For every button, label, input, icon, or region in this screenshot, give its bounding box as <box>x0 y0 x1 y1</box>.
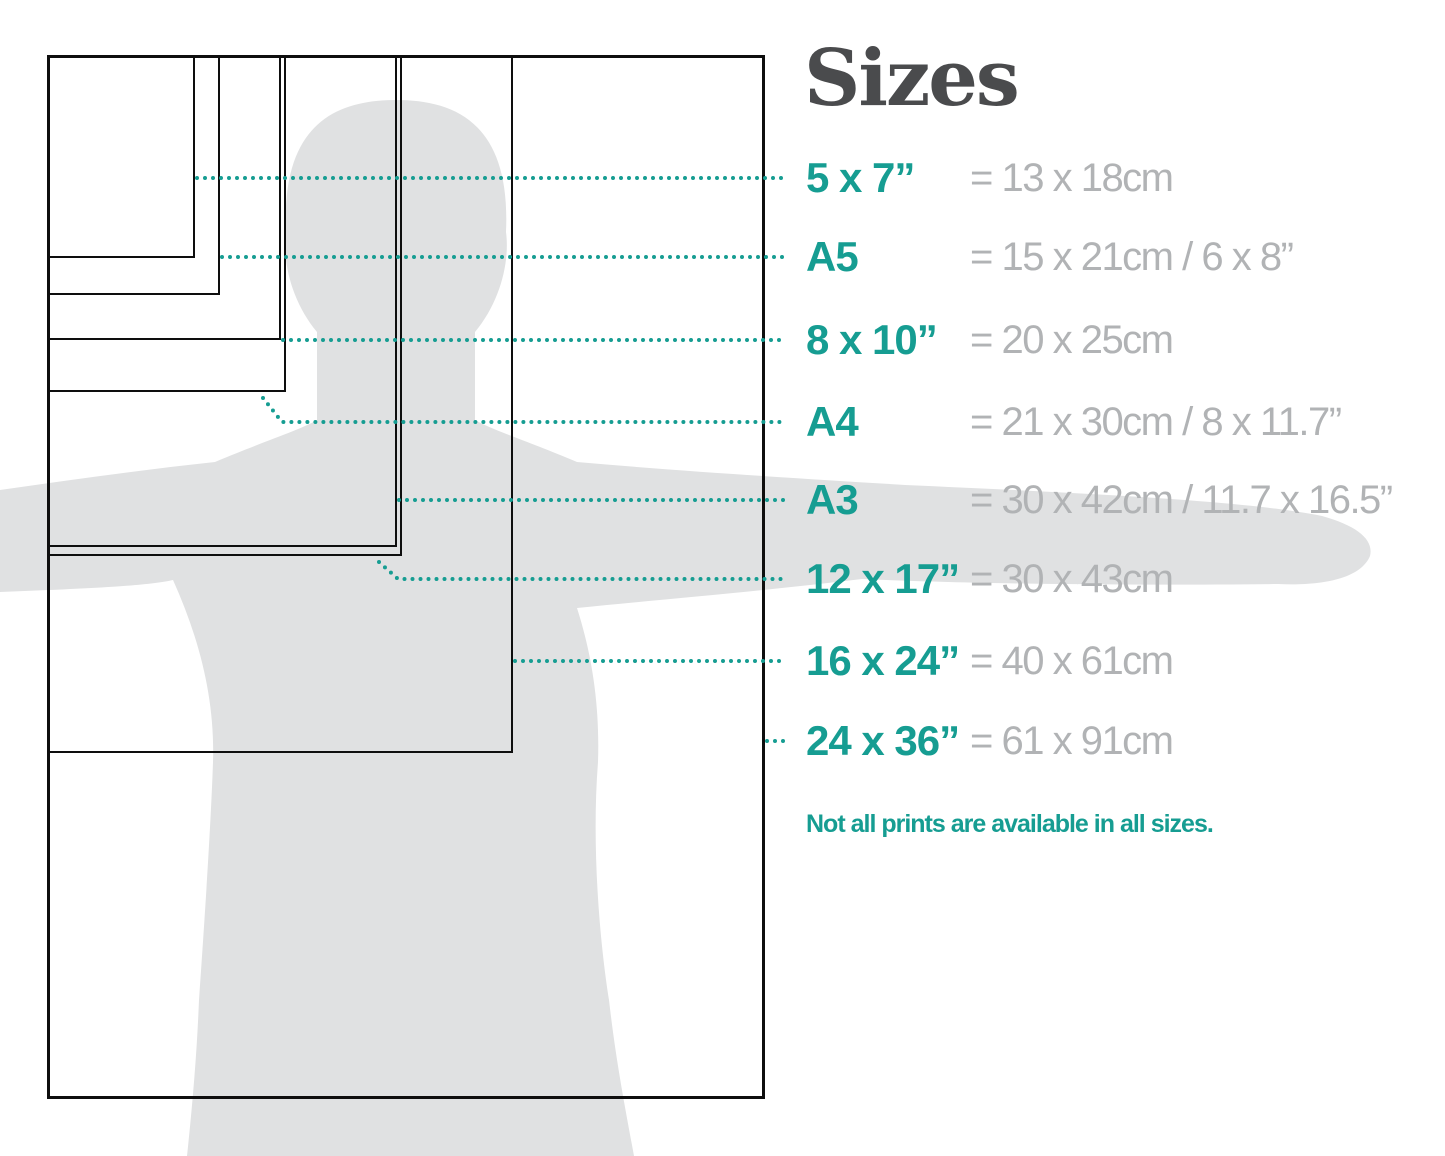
size-guide-canvas: Sizes 5 x 7” = 13 x 18cm A5 = 15 x 21cm … <box>0 0 1445 1156</box>
size-label: 12 x 17” <box>806 549 959 609</box>
size-metric-value: = 20 x 25cm <box>970 310 1173 370</box>
size-label: A3 <box>806 470 858 530</box>
legend-column: Sizes 5 x 7” = 13 x 18cm A5 = 15 x 21cm … <box>0 0 1445 1156</box>
size-row: A4 = 21 x 30cm / 8 x 11.7” <box>806 392 1445 452</box>
size-metric-value: = 15 x 21cm / 6 x 8” <box>970 227 1292 287</box>
size-row: 12 x 17” = 30 x 43cm <box>806 549 1445 609</box>
size-label: 16 x 24” <box>806 631 959 691</box>
size-label: 8 x 10” <box>806 310 937 370</box>
size-row: 5 x 7” = 13 x 18cm <box>806 148 1445 208</box>
size-label: A5 <box>806 227 858 287</box>
size-row: 16 x 24” = 40 x 61cm <box>806 631 1445 691</box>
size-row: 8 x 10” = 20 x 25cm <box>806 310 1445 370</box>
size-label: 5 x 7” <box>806 148 914 208</box>
size-row: A3 = 30 x 42cm / 11.7 x 16.5” <box>806 470 1445 530</box>
size-row: 24 x 36” = 61 x 91cm <box>806 711 1445 771</box>
size-metric-value: = 30 x 42cm / 11.7 x 16.5” <box>970 470 1392 530</box>
page-title: Sizes <box>804 40 1018 118</box>
size-metric-value: = 61 x 91cm <box>970 711 1173 771</box>
size-label: A4 <box>806 392 858 452</box>
size-row: A5 = 15 x 21cm / 6 x 8” <box>806 227 1445 287</box>
size-metric-value: = 13 x 18cm <box>970 148 1173 208</box>
availability-note: Not all prints are available in all size… <box>806 810 1213 839</box>
size-metric-value: = 21 x 30cm / 8 x 11.7” <box>970 392 1341 452</box>
size-metric-value: = 30 x 43cm <box>970 549 1173 609</box>
size-metric-value: = 40 x 61cm <box>970 631 1173 691</box>
size-label: 24 x 36” <box>806 711 959 771</box>
